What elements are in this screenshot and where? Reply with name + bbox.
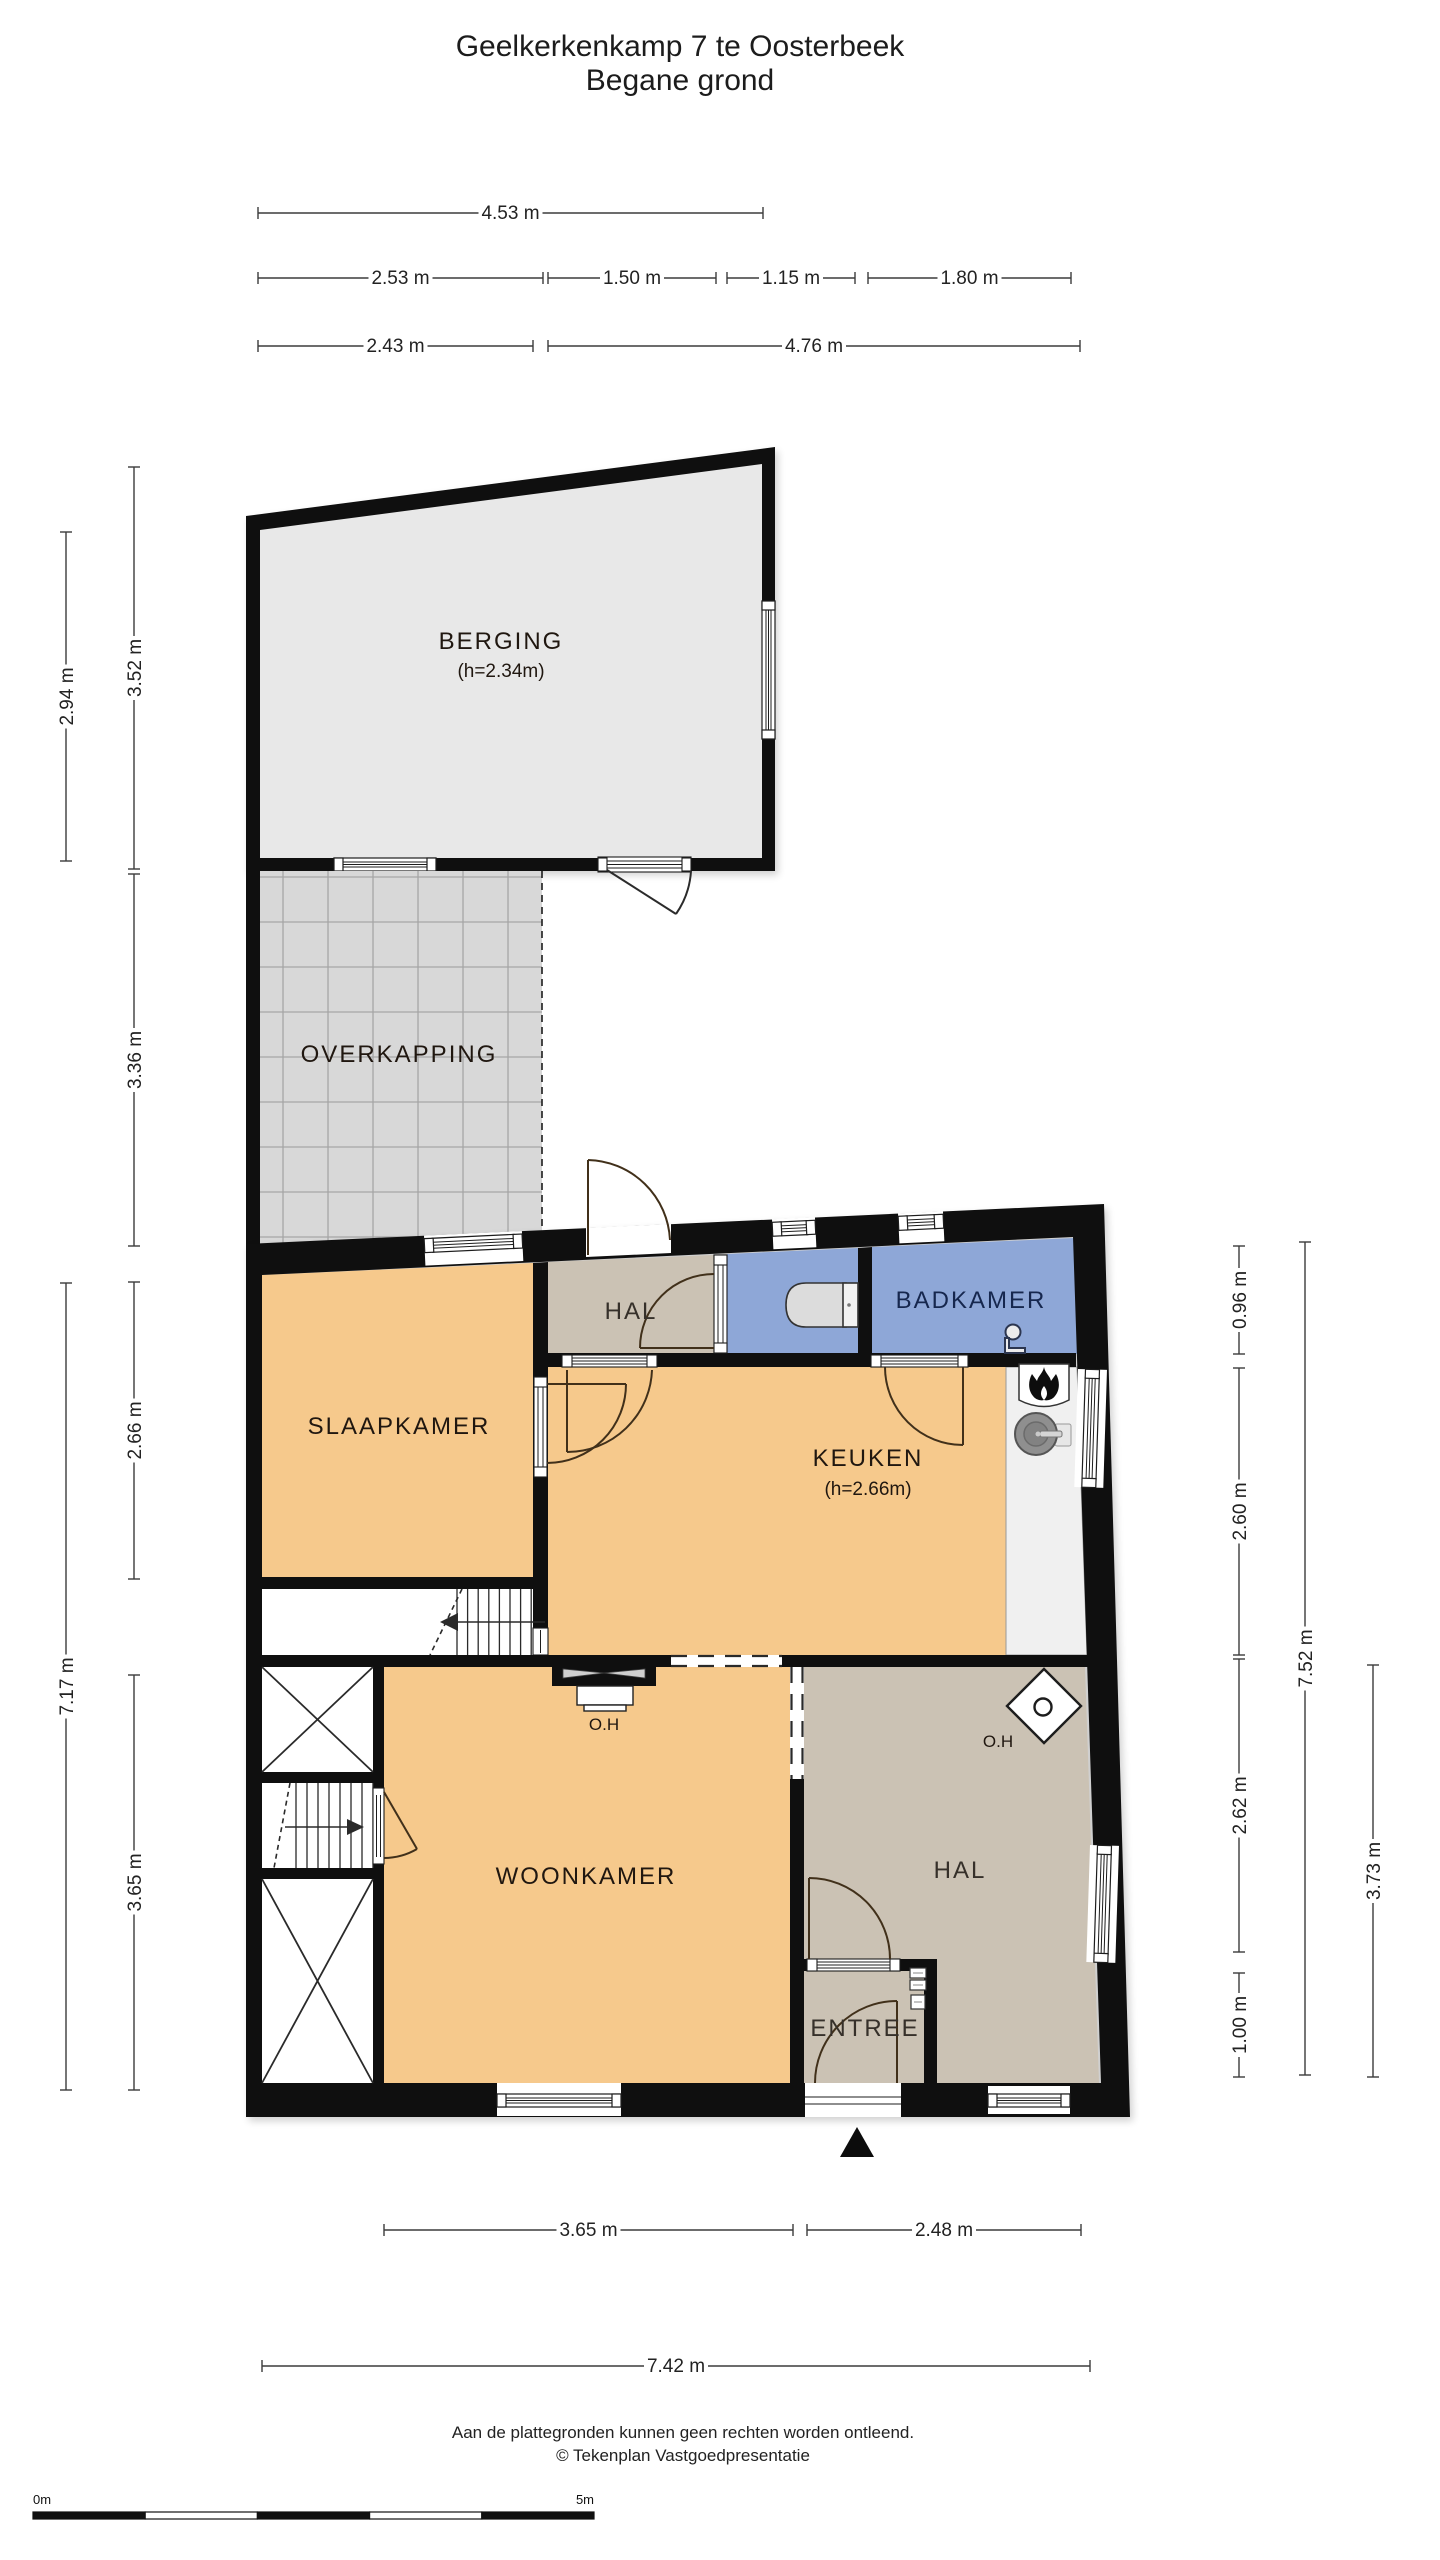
svg-text:2.62 m: 2.62 m xyxy=(1230,1776,1251,1834)
svg-text:5m: 5m xyxy=(576,2492,594,2507)
svg-text:3.65 m: 3.65 m xyxy=(559,2220,617,2241)
svg-text:3.65 m: 3.65 m xyxy=(125,1853,146,1911)
svg-text:2.43 m: 2.43 m xyxy=(366,336,424,357)
svg-text:KEUKEN: KEUKEN xyxy=(813,1445,924,1472)
svg-text:7.52 m: 7.52 m xyxy=(1296,1629,1317,1687)
svg-text:4.53 m: 4.53 m xyxy=(481,203,539,224)
svg-text:1.80 m: 1.80 m xyxy=(940,268,998,289)
svg-text:WOONKAMER: WOONKAMER xyxy=(496,1863,677,1890)
svg-text:2.94 m: 2.94 m xyxy=(57,667,78,725)
svg-text:Aan de plattegronden kunnen ge: Aan de plattegronden kunnen geen rechten… xyxy=(452,2423,914,2442)
svg-text:3.36 m: 3.36 m xyxy=(125,1031,146,1089)
svg-text:1.50 m: 1.50 m xyxy=(603,268,661,289)
svg-text:(h=2.34m): (h=2.34m) xyxy=(457,661,544,682)
svg-text:2.48 m: 2.48 m xyxy=(915,2220,973,2241)
svg-text:4.76 m: 4.76 m xyxy=(785,336,843,357)
svg-text:BADKAMER: BADKAMER xyxy=(896,1287,1047,1314)
svg-text:1.15 m: 1.15 m xyxy=(762,268,820,289)
svg-text:© Tekenplan Vastgoedpresentati: © Tekenplan Vastgoedpresentatie xyxy=(556,2446,810,2465)
svg-text:O.H: O.H xyxy=(589,1715,619,1734)
svg-text:3.52 m: 3.52 m xyxy=(125,639,146,697)
svg-text:2.53 m: 2.53 m xyxy=(371,268,429,289)
svg-text:SLAAPKAMER: SLAAPKAMER xyxy=(308,1413,491,1440)
svg-text:3.73 m: 3.73 m xyxy=(1364,1842,1385,1900)
svg-text:0m: 0m xyxy=(33,2492,51,2507)
svg-text:(h=2.66m): (h=2.66m) xyxy=(824,1479,911,1500)
svg-text:HAL: HAL xyxy=(605,1298,658,1325)
svg-text:O.H: O.H xyxy=(983,1732,1013,1751)
svg-text:BERGING: BERGING xyxy=(439,628,564,655)
svg-text:1.00 m: 1.00 m xyxy=(1230,1996,1251,2054)
svg-text:ENTREE: ENTREE xyxy=(810,2015,919,2042)
svg-text:2.66 m: 2.66 m xyxy=(125,1401,146,1459)
svg-text:Begane grond: Begane grond xyxy=(586,64,775,97)
svg-text:7.42 m: 7.42 m xyxy=(647,2356,705,2377)
svg-text:2.60 m: 2.60 m xyxy=(1230,1482,1251,1540)
svg-text:OVERKAPPING: OVERKAPPING xyxy=(301,1041,498,1068)
svg-text:HAL: HAL xyxy=(934,1857,987,1884)
svg-text:Geelkerkenkamp 7 te Oosterbeek: Geelkerkenkamp 7 te Oosterbeek xyxy=(456,30,906,63)
svg-text:7.17 m: 7.17 m xyxy=(57,1657,78,1715)
svg-text:0.96 m: 0.96 m xyxy=(1230,1271,1251,1329)
